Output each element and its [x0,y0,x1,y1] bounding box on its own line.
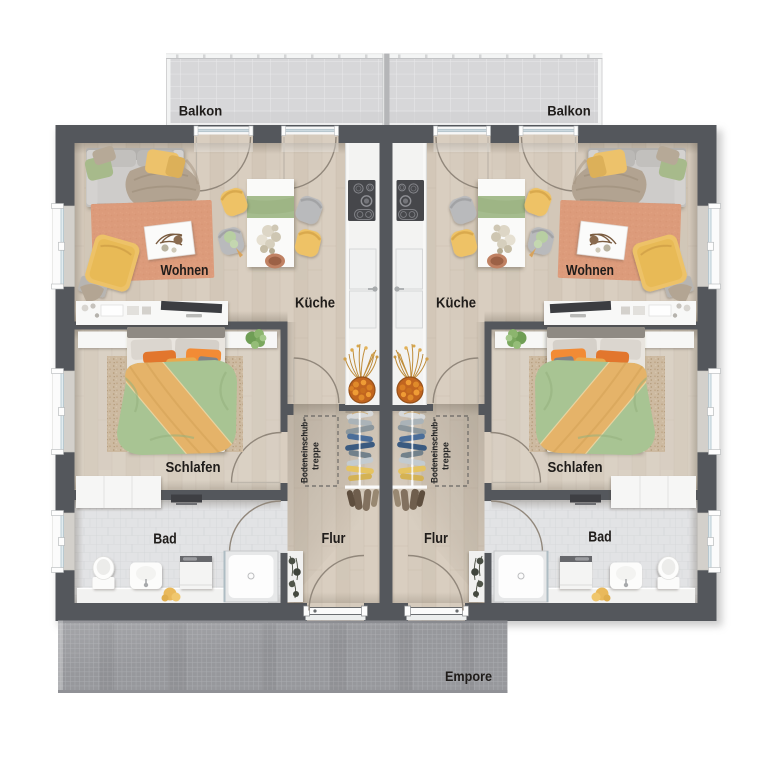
svg-text:Schlafen: Schlafen [548,460,603,476]
svg-text:Balkon: Balkon [547,104,591,119]
svg-text:Wohnen: Wohnen [161,263,209,279]
svg-text:Wohnen: Wohnen [566,263,614,279]
svg-text:Flur: Flur [424,531,448,547]
svg-text:Küche: Küche [436,296,476,312]
svg-text:Bad: Bad [588,530,612,546]
svg-text:treppe: treppe [311,442,321,470]
svg-text:Bodeneinschub-: Bodeneinschub- [430,419,440,483]
svg-text:Bad: Bad [153,532,177,548]
svg-text:Küche: Küche [295,296,335,312]
svg-text:Schlafen: Schlafen [166,460,221,476]
svg-text:Bodeneinschub-: Bodeneinschub- [300,419,310,483]
svg-text:treppe: treppe [441,442,451,470]
svg-text:Flur: Flur [322,531,346,547]
svg-text:Empore: Empore [445,668,492,684]
svg-text:Balkon: Balkon [179,104,223,119]
